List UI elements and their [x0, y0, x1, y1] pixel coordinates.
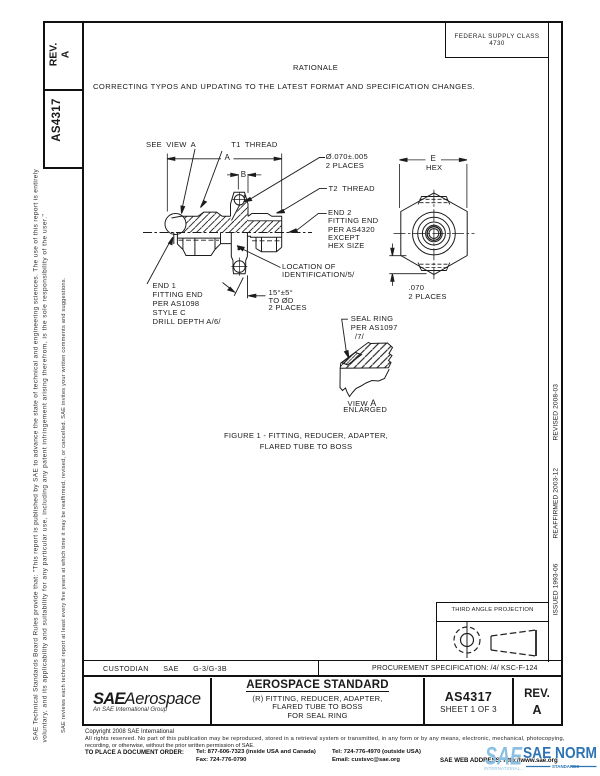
svg-text:INTERNATIONAL...: INTERNATIONAL...	[484, 766, 524, 771]
svg-text:SAE NORM: SAE NORM	[523, 745, 597, 762]
